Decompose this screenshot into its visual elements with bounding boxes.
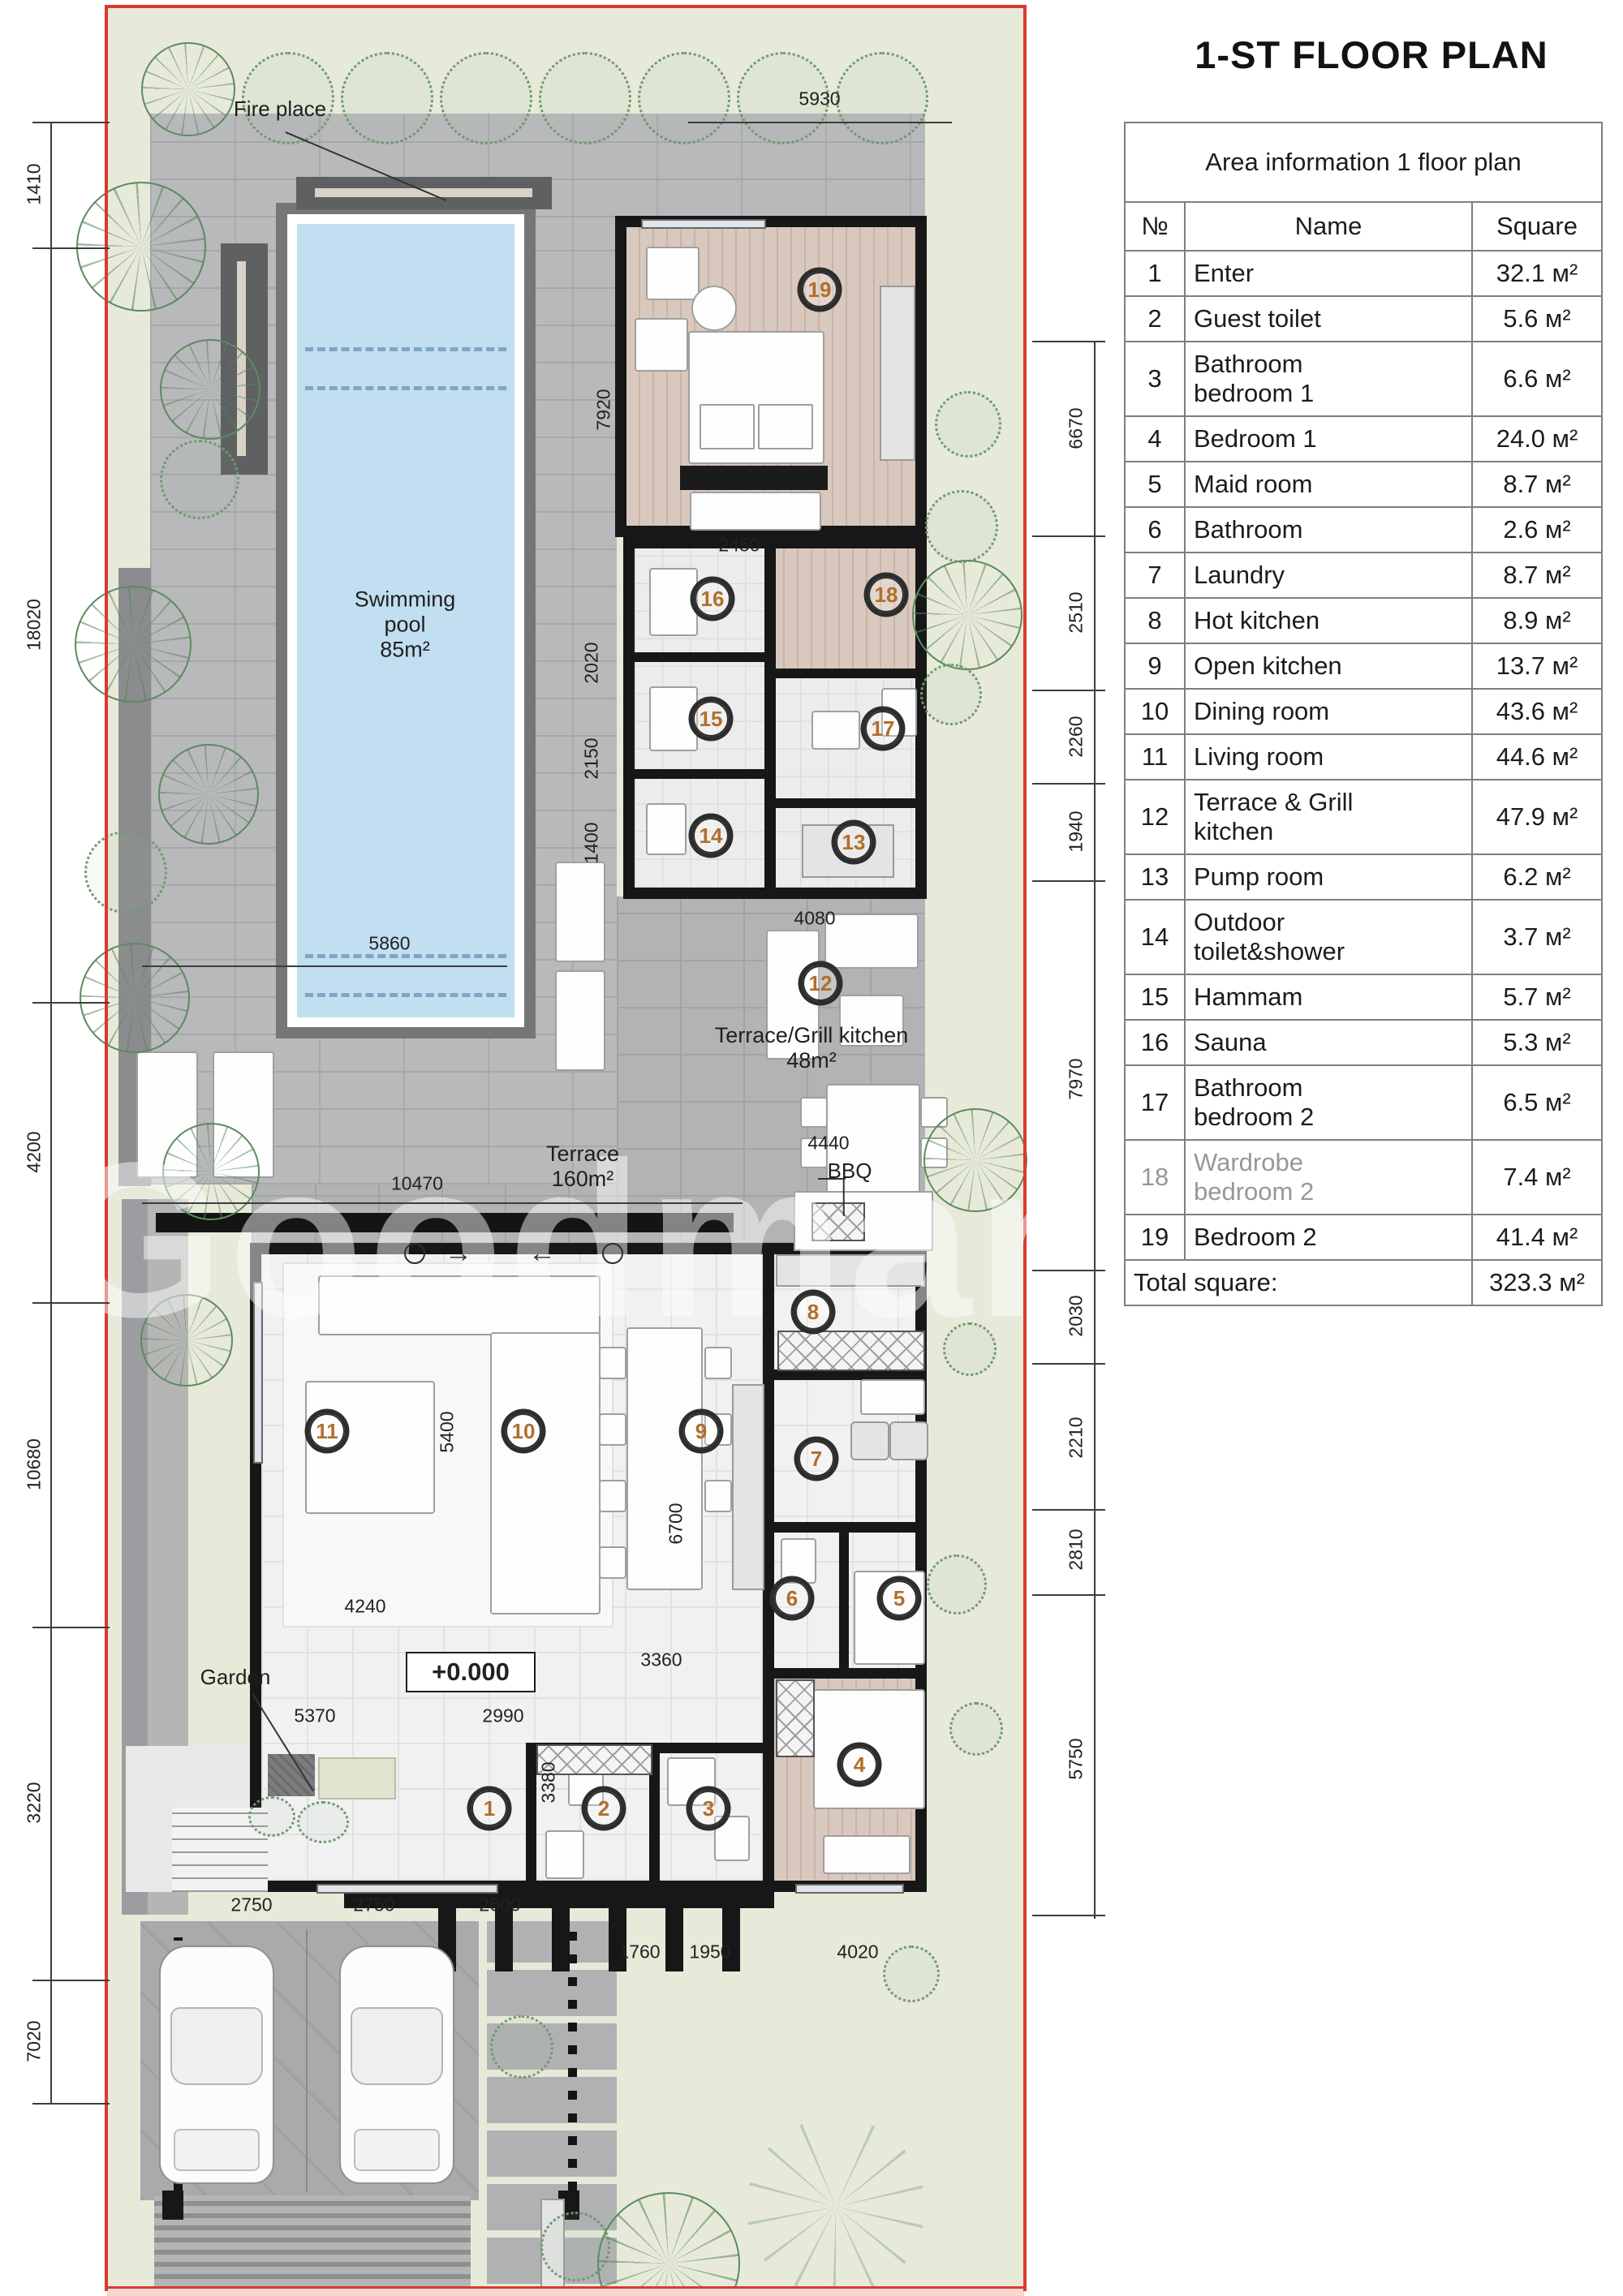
row-no: 11	[1125, 734, 1185, 780]
table-row: 10Dining room43.6 м²	[1125, 689, 1602, 734]
wardrobe-cabinet	[880, 286, 915, 461]
row-name: Terrace & Grill kitchen	[1185, 780, 1472, 854]
dimension-label: 7920	[593, 389, 615, 430]
dimension-label: 1400	[581, 822, 603, 863]
row-no: 19	[1125, 1215, 1185, 1260]
dim-tick	[1032, 1915, 1105, 1916]
dimension-label: 1760	[618, 1941, 660, 1963]
table-total-row: Total square: 323.3 м²	[1125, 1260, 1602, 1305]
boundary-strip	[107, 2289, 1024, 2296]
row-square: 6.5 м²	[1472, 1065, 1602, 1140]
row-square: 6.6 м²	[1472, 342, 1602, 416]
outdoor-sofa	[824, 914, 919, 969]
row-no: 18	[1125, 1140, 1185, 1215]
gate-post	[162, 2191, 183, 2220]
row-no: 10	[1125, 689, 1185, 734]
desk	[690, 492, 821, 531]
bed-bench	[680, 466, 828, 490]
dim-tick	[1032, 535, 1105, 537]
room-badge-10: 10	[506, 1413, 541, 1449]
row-no: 4	[1125, 416, 1185, 462]
dimension-label: 3360	[640, 1649, 682, 1671]
room-badge-18: 18	[868, 577, 904, 613]
dimension-label: 5370	[294, 1705, 335, 1727]
outdoor-toilet	[646, 803, 687, 855]
room-badge-17: 17	[865, 711, 901, 746]
dim-line-5860	[142, 965, 507, 967]
table-row: 19Bedroom 241.4 м²	[1125, 1215, 1602, 1260]
chair	[599, 1546, 626, 1579]
dimension-label: 2020	[581, 642, 603, 683]
table-row: 18Wardrobe bedroom 27.4 м²	[1125, 1140, 1602, 1215]
shrub-icon	[638, 52, 730, 144]
wall	[774, 1668, 927, 1679]
dimension-label: 18020	[24, 599, 45, 651]
grill-kitchen-label: Terrace/Grill kitchen 48m²	[715, 1023, 909, 1073]
row-name: Dining room	[1185, 689, 1472, 734]
dimension-label: 4020	[837, 1941, 878, 1963]
dimension-label: 3380	[538, 1761, 560, 1803]
dim-tick	[32, 1980, 110, 1981]
floor-plan-sheet: → ←	[0, 0, 1623, 2296]
row-square: 5.6 м²	[1472, 296, 1602, 342]
pool-label: Swimming pool 85m²	[355, 587, 456, 662]
col-header-name: Name	[1185, 202, 1472, 251]
dimension-label: 7970	[1065, 1058, 1087, 1099]
tree-icon	[912, 560, 1022, 670]
elevation-mark: +0.000	[406, 1652, 536, 1692]
direction-arrow: →	[445, 1238, 472, 1270]
laundry-sink	[860, 1379, 925, 1415]
room-badge-9: 9	[683, 1413, 719, 1449]
dimension-label: 10470	[391, 1173, 443, 1195]
boundary-line-top	[105, 5, 1027, 8]
room-badge-16: 16	[695, 581, 730, 617]
row-name: Wardrobe bedroom 2	[1185, 1140, 1472, 1215]
dimension-label: 2210	[1065, 1417, 1087, 1458]
shrub-icon	[927, 1554, 987, 1615]
table-row: 6Bathroom2.6 м²	[1125, 507, 1602, 553]
row-square: 8.7 м²	[1472, 553, 1602, 598]
sink	[545, 1830, 584, 1879]
row-name: Open kitchen	[1185, 643, 1472, 689]
dimension-label: 3220	[24, 1782, 45, 1823]
wall	[623, 769, 776, 779]
row-square: 7.4 м²	[1472, 1140, 1602, 1215]
row-name: Outdoor toilet&shower	[1185, 900, 1472, 974]
row-name: Bathroom	[1185, 507, 1472, 553]
wall	[526, 1743, 536, 1892]
wall	[764, 798, 927, 808]
table-row: 16Sauna5.3 м²	[1125, 1020, 1602, 1065]
row-square: 13.7 м²	[1472, 643, 1602, 689]
wardrobe-strip	[776, 1679, 815, 1757]
shrub-icon	[935, 391, 1001, 458]
dimension-label: 10680	[24, 1438, 45, 1490]
room-badge-12: 12	[803, 965, 838, 1001]
dim-tick	[1032, 1509, 1105, 1511]
car	[159, 1946, 274, 2184]
wall	[764, 537, 776, 899]
row-name: Hot kitchen	[1185, 598, 1472, 643]
dimension-label: 1950	[689, 1941, 730, 1963]
row-name: Bedroom 2	[1185, 1215, 1472, 1260]
area-table: Area information 1 floor plan № Name Squ…	[1124, 122, 1603, 1306]
dimension-label: 5860	[368, 933, 410, 955]
kitchen-counter	[732, 1384, 764, 1590]
terrace-label: Terrace 160m²	[546, 1142, 619, 1192]
driveway-ramp	[154, 2195, 471, 2291]
dim-tick	[32, 2103, 110, 2105]
tree-icon	[75, 586, 192, 703]
total-value: 323.3 м²	[1472, 1260, 1602, 1305]
fireplace-label: Fire place	[234, 97, 326, 122]
row-name: Sauna	[1185, 1020, 1472, 1065]
row-name: Laundry	[1185, 553, 1472, 598]
bathroom-sink	[811, 711, 860, 750]
dimension-label: 5400	[437, 1411, 458, 1452]
row-square: 3.7 м²	[1472, 900, 1602, 974]
room-badge-3: 3	[691, 1791, 726, 1826]
row-name: Hammam	[1185, 974, 1472, 1020]
dim-line-left	[50, 122, 52, 2105]
entrance-canopy	[344, 1892, 774, 1908]
row-no: 5	[1125, 462, 1185, 507]
dim-tick	[1032, 880, 1105, 882]
row-name: Pump room	[1185, 854, 1472, 900]
row-name: Living room	[1185, 734, 1472, 780]
bbq-leader	[843, 1179, 845, 1216]
sun-lounger	[555, 862, 605, 962]
chair	[704, 1480, 732, 1512]
tree-icon	[80, 943, 190, 1053]
room-badge-5: 5	[881, 1580, 917, 1616]
dryer-machine	[889, 1421, 928, 1460]
room-badge-13: 13	[836, 824, 872, 860]
garden-planter	[268, 1754, 315, 1796]
sauna-bench	[649, 568, 698, 636]
row-square: 43.6 м²	[1472, 689, 1602, 734]
row-name: Bathroom bedroom 2	[1185, 1065, 1472, 1140]
dim-tick	[1032, 1270, 1105, 1271]
parking-divider	[306, 1929, 308, 2192]
table-row: 2Guest toilet5.6 м²	[1125, 296, 1602, 342]
garden-planter-2	[318, 1757, 396, 1799]
dimension-label: 2810	[1065, 1529, 1087, 1570]
wall	[839, 1533, 849, 1668]
dimension-label: 2990	[482, 1705, 523, 1727]
shrub-icon	[160, 440, 239, 519]
bbq-label: BBQ	[828, 1159, 872, 1184]
row-no: 15	[1125, 974, 1185, 1020]
row-square: 47.9 м²	[1472, 780, 1602, 854]
table-header: № Name Square	[1125, 202, 1602, 251]
row-no: 3	[1125, 342, 1185, 416]
pool-lane-dash	[305, 386, 506, 390]
row-square: 8.7 м²	[1472, 462, 1602, 507]
row-square: 6.2 м²	[1472, 854, 1602, 900]
row-no: 8	[1125, 598, 1185, 643]
dimension-label: 2750	[353, 1894, 394, 1916]
table-row: 5Maid room8.7 м²	[1125, 462, 1602, 507]
row-no: 6	[1125, 507, 1185, 553]
row-no: 13	[1125, 854, 1185, 900]
shrub-icon	[949, 1702, 1003, 1756]
pillow	[758, 404, 813, 449]
toilet	[714, 1816, 750, 1861]
dim-tick	[32, 1302, 110, 1304]
row-name: Maid room	[1185, 462, 1472, 507]
armchair	[646, 247, 700, 300]
desk	[823, 1835, 911, 1874]
row-square: 8.9 м²	[1472, 598, 1602, 643]
row-no: 1	[1125, 251, 1185, 296]
pergola-bar	[665, 1908, 683, 1971]
pool-lane-dash	[305, 347, 506, 351]
planter-shrub	[297, 1801, 349, 1843]
window	[316, 1884, 498, 1894]
row-no: 7	[1125, 553, 1185, 598]
boundary-line-bottom	[105, 2286, 1027, 2289]
car	[339, 1946, 454, 2184]
dimension-label: 2750	[230, 1894, 272, 1916]
armchair	[635, 318, 688, 372]
dimension-label: 5750	[1065, 1738, 1087, 1779]
row-name: Enter	[1185, 251, 1472, 296]
room-badge-4: 4	[842, 1747, 877, 1782]
table-row: 1Enter32.1 м²	[1125, 251, 1602, 296]
table-row: 11Living room44.6 м²	[1125, 734, 1602, 780]
dim-tick	[32, 1002, 110, 1004]
window	[795, 1884, 904, 1894]
table-row: 15Hammam5.7 м²	[1125, 974, 1602, 1020]
toilet	[781, 1538, 816, 1584]
dimension-label: 6670	[1065, 407, 1087, 449]
dimension-label: 2510	[1065, 591, 1087, 633]
shrub-icon	[920, 664, 982, 725]
tree-icon	[76, 182, 206, 312]
dimension-label: 1410	[24, 163, 45, 204]
washing-machine	[850, 1421, 889, 1460]
planter-shrub	[248, 1796, 295, 1837]
row-square: 5.7 м²	[1472, 974, 1602, 1020]
sun-lounger	[555, 970, 605, 1071]
row-square: 5.3 м²	[1472, 1020, 1602, 1065]
row-no: 9	[1125, 643, 1185, 689]
room-badge-11: 11	[309, 1413, 345, 1449]
table-row: 4Bedroom 124.0 м²	[1125, 416, 1602, 462]
wall	[774, 1522, 927, 1533]
dim-tick	[32, 247, 110, 249]
dimension-label: 2150	[581, 737, 603, 779]
pillow	[700, 404, 755, 449]
dim-tick	[1032, 341, 1105, 342]
dimension-label: 2450	[718, 535, 760, 557]
page-title: 1-ST FLOOR PLAN	[1128, 32, 1615, 77]
dim-tick	[1032, 1594, 1105, 1596]
total-label: Total square:	[1125, 1260, 1472, 1305]
room-badge-14: 14	[693, 818, 729, 853]
side-table	[691, 286, 737, 331]
dim-line-10470	[142, 1202, 743, 1204]
table-row: 8Hot kitchen8.9 м²	[1125, 598, 1602, 643]
window	[641, 219, 766, 229]
col-header-square: Square	[1472, 202, 1602, 251]
tree-icon	[141, 42, 235, 136]
table-row: 13Pump room6.2 м²	[1125, 854, 1602, 900]
table-row: 12Terrace & Grill kitchen47.9 м²	[1125, 780, 1602, 854]
shrub-icon	[883, 1946, 940, 2002]
room-badge-7: 7	[799, 1441, 834, 1477]
shrub-icon	[84, 831, 167, 914]
table-row: 7Laundry8.7 м²	[1125, 553, 1602, 598]
row-name: Bedroom 1	[1185, 416, 1472, 462]
pool-lane-dash	[305, 954, 506, 958]
room-badge-19: 19	[802, 272, 837, 307]
row-no: 2	[1125, 296, 1185, 342]
dim-tick	[32, 1627, 110, 1628]
level-mark	[602, 1243, 623, 1264]
row-name: Guest toilet	[1185, 296, 1472, 342]
shrub-icon	[925, 490, 998, 563]
table-row: 3Bathroom bedroom 16.6 м²	[1125, 342, 1602, 416]
dimension-label: 2260	[1065, 716, 1087, 757]
table-row: 9Open kitchen13.7 м²	[1125, 643, 1602, 689]
row-no: 14	[1125, 900, 1185, 974]
dim-line-top	[688, 122, 952, 123]
col-header-no: №	[1125, 202, 1185, 251]
hammam-bench	[649, 686, 698, 751]
wall	[623, 652, 776, 662]
row-no: 12	[1125, 780, 1185, 854]
pergola-bar	[552, 1908, 570, 1971]
row-no: 16	[1125, 1020, 1185, 1065]
pool-lane-dash	[305, 993, 506, 997]
shrub-icon	[440, 52, 532, 144]
direction-arrow: ←	[528, 1238, 556, 1270]
chair	[599, 1413, 626, 1446]
row-square: 24.0 м²	[1472, 416, 1602, 462]
row-name: Bathroom bedroom 1	[1185, 342, 1472, 416]
shrub-icon	[836, 52, 928, 144]
room-badge-8: 8	[795, 1294, 831, 1330]
dimension-label: 2030	[1065, 1295, 1087, 1336]
table-caption: Area information 1 floor plan	[1125, 123, 1602, 202]
dim-tick	[1032, 690, 1105, 691]
level-mark	[404, 1243, 425, 1264]
agave-plant-icon	[747, 2118, 925, 2296]
dim-tick	[1032, 1363, 1105, 1365]
dimension-label: 6700	[665, 1503, 687, 1544]
row-square: 44.6 м²	[1472, 734, 1602, 780]
dimension-label: 5930	[799, 88, 840, 110]
room-badge-1: 1	[471, 1791, 507, 1826]
dimension-label: 1940	[1065, 810, 1087, 852]
chair	[599, 1480, 626, 1512]
dimension-label: 4080	[794, 908, 835, 930]
garden-label: Garden	[200, 1666, 271, 1690]
row-no: 17	[1125, 1065, 1185, 1140]
pergola-bar	[495, 1908, 513, 1971]
shrub-icon	[539, 52, 631, 144]
shrub-icon	[490, 2015, 553, 2079]
tree-icon	[158, 744, 259, 845]
row-square: 41.4 м²	[1472, 1215, 1602, 1260]
dimension-label: 4200	[24, 1131, 45, 1172]
room-badge-15: 15	[693, 701, 729, 737]
dim-tick	[1032, 783, 1105, 785]
wall	[764, 669, 927, 678]
dimension-label: 7020	[24, 2020, 45, 2062]
table-row: 17Bathroom bedroom 26.5 м²	[1125, 1065, 1602, 1140]
room-badge-6: 6	[774, 1580, 810, 1616]
room-badge-2: 2	[586, 1791, 622, 1826]
sofa-chaise	[490, 1332, 601, 1615]
dim-tick	[32, 122, 110, 123]
dimension-label: 4440	[807, 1133, 849, 1154]
row-square: 2.6 м²	[1472, 507, 1602, 553]
dimension-label: 2600	[479, 1894, 520, 1916]
dimension-label: 4240	[344, 1596, 385, 1618]
dim-line-right	[1094, 341, 1096, 1919]
shrub-icon	[341, 52, 433, 144]
tree-icon	[160, 339, 260, 440]
table-row: 14Outdoor toilet&shower3.7 м²	[1125, 900, 1602, 974]
row-square: 32.1 м²	[1472, 251, 1602, 296]
